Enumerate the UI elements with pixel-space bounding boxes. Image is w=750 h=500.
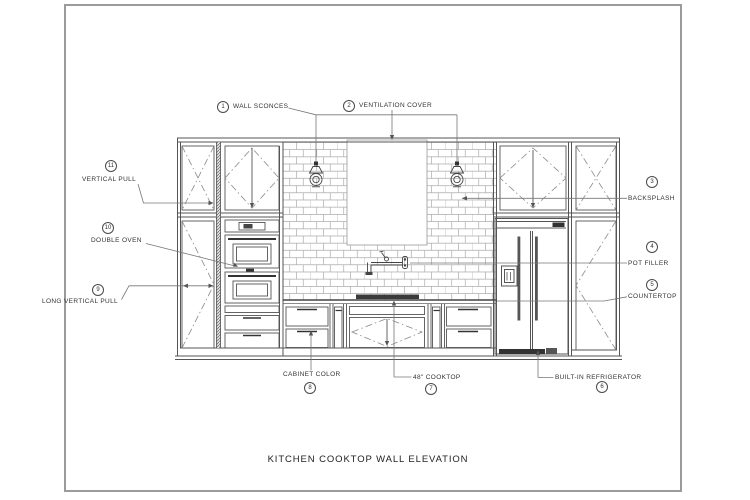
fridge-handle-left xyxy=(518,237,521,321)
drawing-title: KITCHEN COOKTOP WALL ELEVATION xyxy=(243,454,493,465)
callout-number-refrigerator: 6 xyxy=(596,381,608,393)
right-cabinets xyxy=(500,146,616,350)
callout-label-refrigerator: BUILT-IN REFRIGERATOR xyxy=(555,374,641,381)
callout-label-long-vertical-pull: LONG VERTICAL PULL xyxy=(42,298,118,305)
callout-label-ventilation-cover: VENTILATION COVER xyxy=(359,102,432,109)
drawing-sheet: 1 2 3 4 5 6 7 8 9 10 11 WALL SCONCES VEN… xyxy=(0,0,750,500)
cooktop-48 xyxy=(356,295,419,300)
callout-number-vertical-pull: 11 xyxy=(105,160,117,172)
callout-number-cabinet-color: 8 xyxy=(304,382,316,394)
callout-number-countertop: 5 xyxy=(646,279,658,291)
callout-label-wall-sconces: WALL SCONCES xyxy=(233,103,288,110)
callout-label-pot-filler: POT FILLER xyxy=(628,260,669,267)
countertop xyxy=(283,300,497,304)
elevation-drawing xyxy=(0,0,750,500)
callout-number-cooktop: 7 xyxy=(425,383,437,395)
callout-label-double-oven: DOUBLE OVEN xyxy=(91,237,142,244)
callout-number-long-vertical-pull: 9 xyxy=(92,284,104,296)
built-in-refrigerator xyxy=(495,219,568,355)
callout-number-ventilation-cover: 2 xyxy=(343,100,355,112)
callout-label-cabinet-color: CABINET COLOR xyxy=(283,371,341,378)
callout-label-backsplash: BACKSPLASH xyxy=(628,195,675,202)
fridge-handle-right xyxy=(535,237,538,321)
left-tall-cabinet xyxy=(182,146,214,348)
callout-label-cooktop: 48" COOKTOP xyxy=(413,374,461,381)
callout-number-pot-filler: 4 xyxy=(646,241,658,253)
callout-number-backsplash: 3 xyxy=(646,176,658,188)
oven-control-display xyxy=(244,224,253,229)
vertical-pull-stile xyxy=(217,142,220,348)
callout-label-vertical-pull: VERTICAL PULL xyxy=(82,176,136,183)
callout-number-wall-sconces: 1 xyxy=(217,101,229,113)
ventilation-cover xyxy=(347,140,427,245)
callout-number-double-oven: 10 xyxy=(102,222,114,234)
callout-label-countertop: COUNTERTOP xyxy=(628,293,677,300)
